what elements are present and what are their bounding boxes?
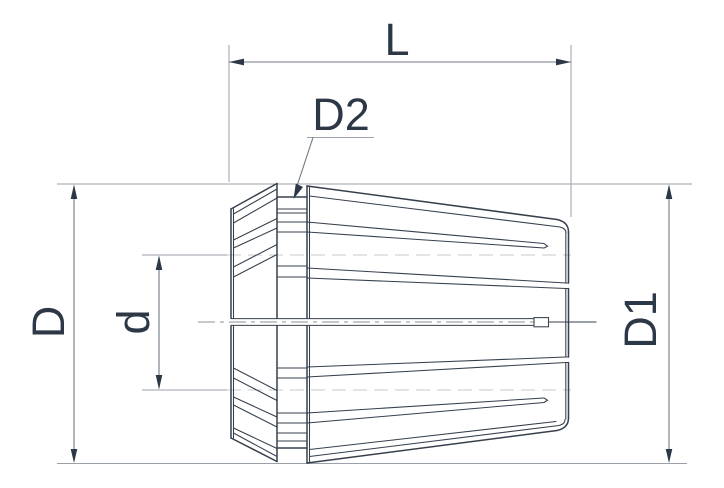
arrowhead-up [666, 185, 673, 200]
label-D1: D1 [615, 291, 666, 349]
arrowhead-down [666, 449, 673, 463]
collet-technical-drawing: L D2 D d D1 [0, 0, 724, 488]
arrowhead-right [556, 59, 571, 66]
collet-body [307, 186, 569, 463]
collet-technical-drawing-page: L D2 D d D1 [0, 0, 724, 488]
label-L: L [384, 14, 409, 65]
dimension-overall-D: D [23, 185, 77, 464]
arrowhead-down [71, 449, 78, 463]
label-D: D [23, 306, 74, 339]
arrowhead-left [229, 59, 244, 66]
dimension-front-D1: D1 [615, 185, 672, 464]
label-D2: D2 [312, 89, 370, 140]
arrowhead-up [71, 185, 78, 200]
arrowhead-up [156, 256, 163, 271]
arrowhead-down [156, 375, 163, 390]
dimension-bore-d: d [108, 256, 162, 390]
dimension-length-L: L [229, 14, 571, 217]
dimension-groove-D2: D2 [294, 89, 375, 199]
label-d: d [108, 309, 159, 334]
bore-slot-end [534, 318, 549, 327]
